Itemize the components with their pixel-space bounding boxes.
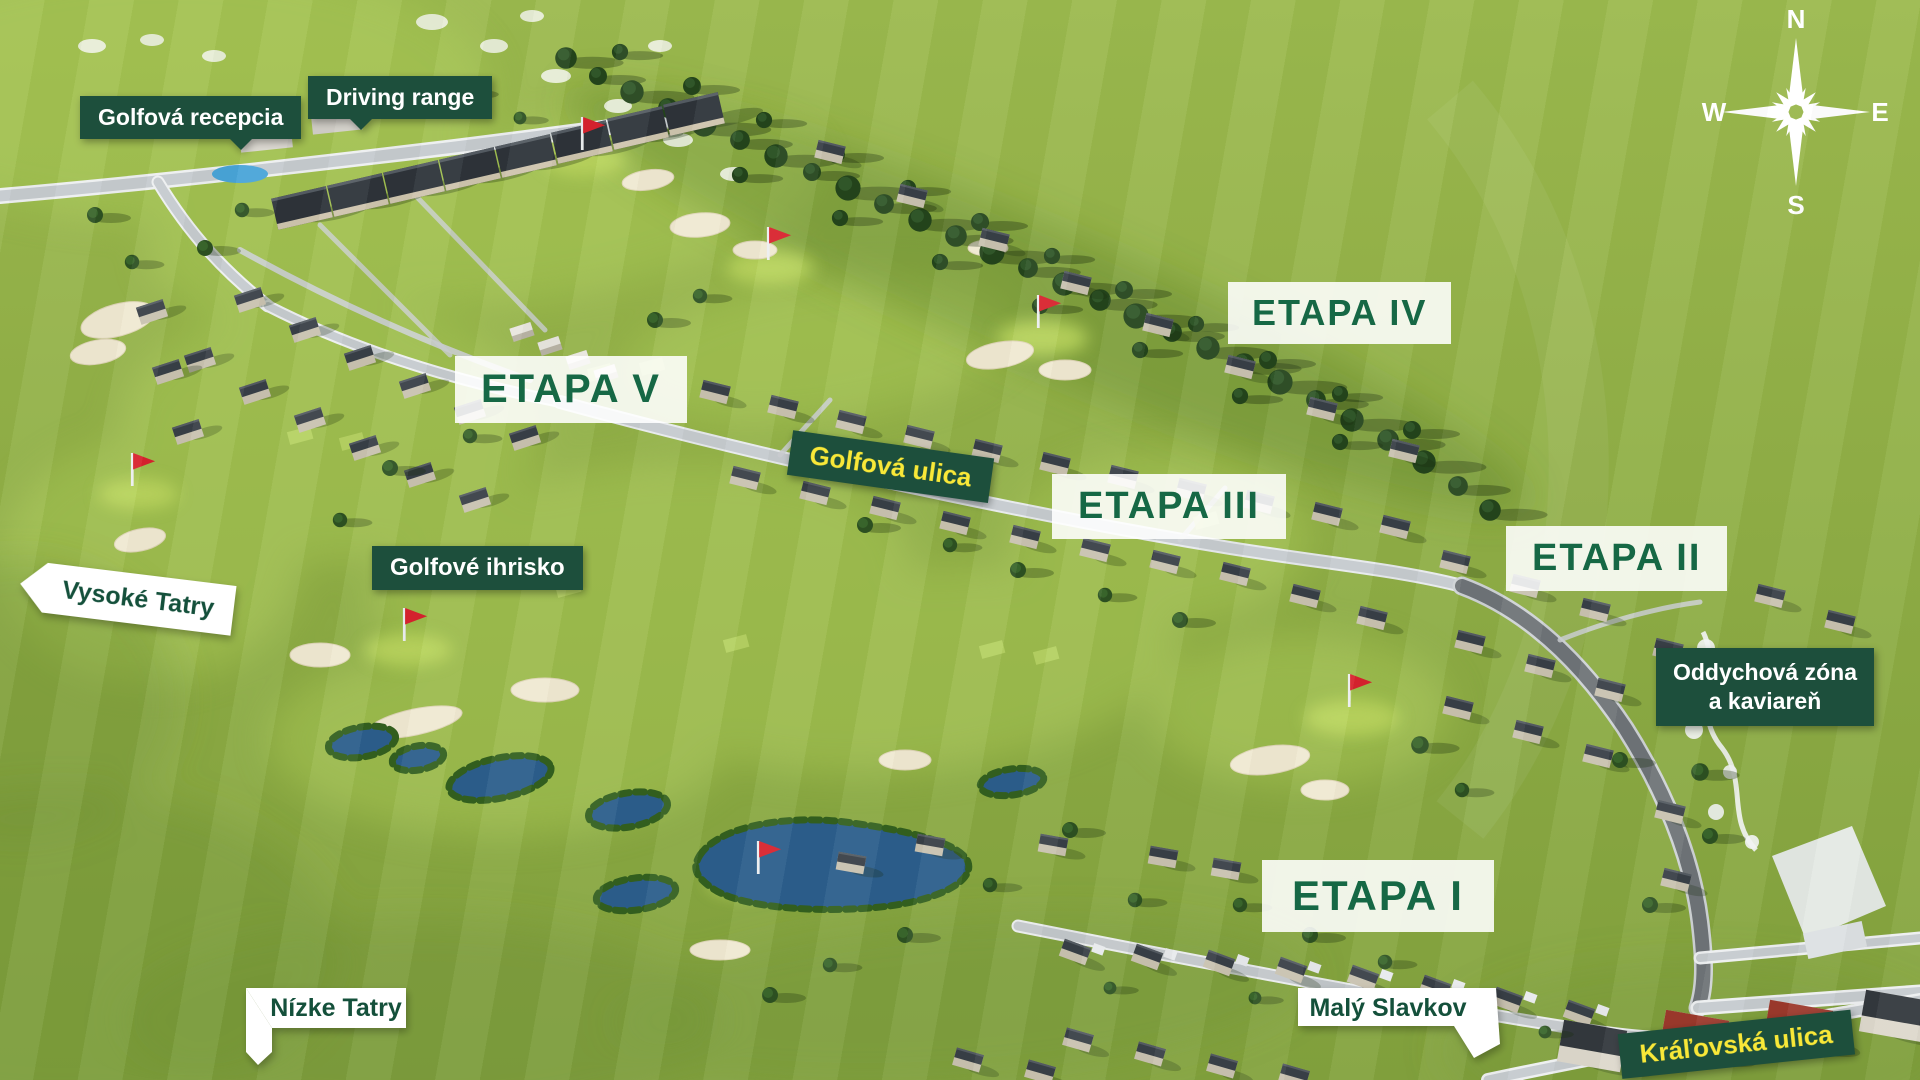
label-etapa-iii: ETAPA III	[1052, 474, 1286, 539]
compass-w: W	[1702, 97, 1727, 127]
label-golf-reception: Golfová recepcia	[80, 96, 301, 139]
compass-n: N	[1787, 4, 1806, 34]
label-etapa-iv: ETAPA IV	[1228, 282, 1451, 344]
compass-e: E	[1871, 97, 1888, 127]
sign-maly-slavkov-text: Malý Slavkov	[1309, 994, 1466, 1022]
label-oddychova-zona: Oddychová zóna a kaviareň	[1656, 648, 1874, 726]
label-golfove-ihrisko: Golfové ihrisko	[372, 546, 583, 590]
label-etapa-ii: ETAPA II	[1506, 526, 1727, 591]
compass-s: S	[1787, 190, 1804, 220]
oddychova-line2: a kaviareň	[1656, 687, 1874, 716]
oddychova-line1: Oddychová zóna	[1656, 658, 1874, 687]
label-etapa-i: ETAPA I	[1262, 860, 1494, 932]
swimming-pool	[212, 165, 268, 183]
label-etapa-v: ETAPA V	[455, 356, 687, 423]
sign-maly-slavkov: Malý Slavkov	[1296, 986, 1506, 1064]
sign-nizke-tatry-text: Nízke Tatry	[270, 994, 402, 1022]
label-driving-range: Driving range	[308, 76, 492, 119]
sign-nizke-tatry: Nízke Tatry	[220, 986, 410, 1068]
masterplan-scene: N E S W Golfová recepcia Driving range E…	[0, 0, 1920, 1080]
